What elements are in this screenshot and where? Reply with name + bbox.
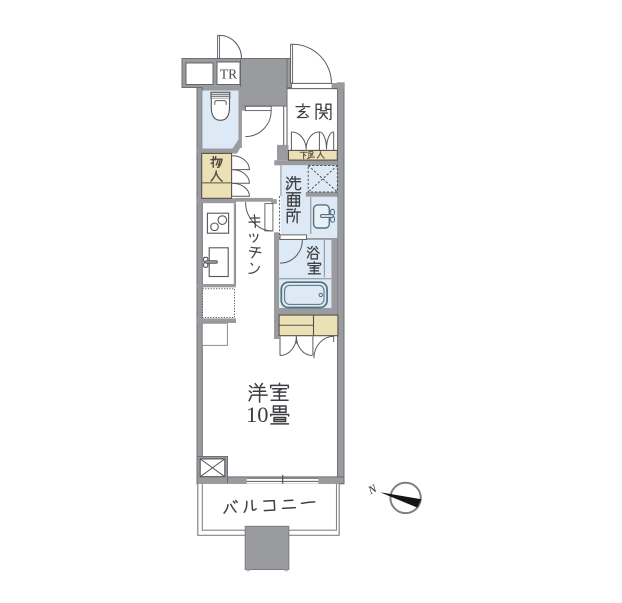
svg-text:TR: TR [220,66,237,81]
svg-text:10: 10 [246,402,269,427]
